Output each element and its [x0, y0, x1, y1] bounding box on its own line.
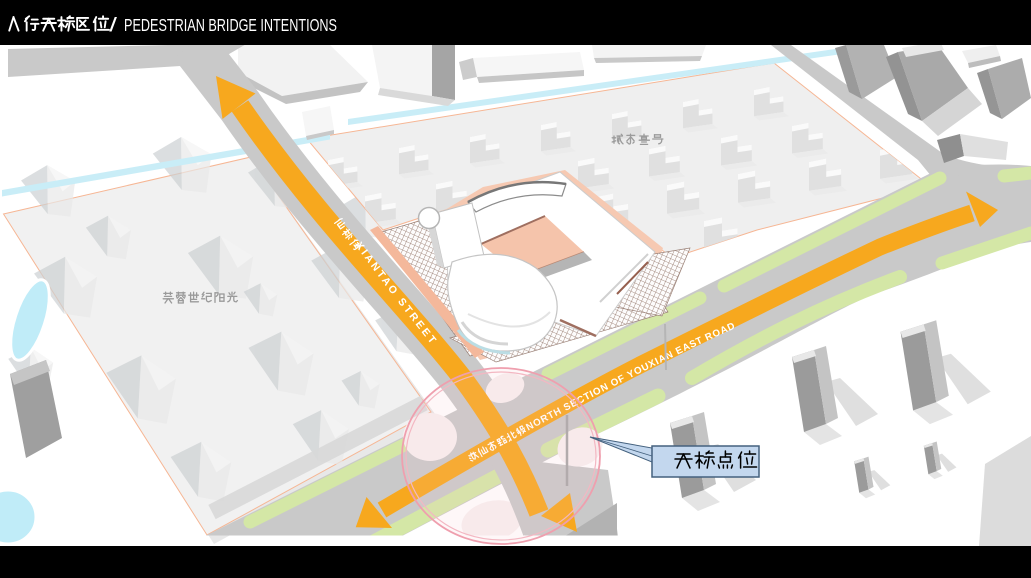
svg-text:PEDESTRIAN BRIDGE INTENTIONS: PEDESTRIAN BRIDGE INTENTIONS	[124, 15, 337, 35]
